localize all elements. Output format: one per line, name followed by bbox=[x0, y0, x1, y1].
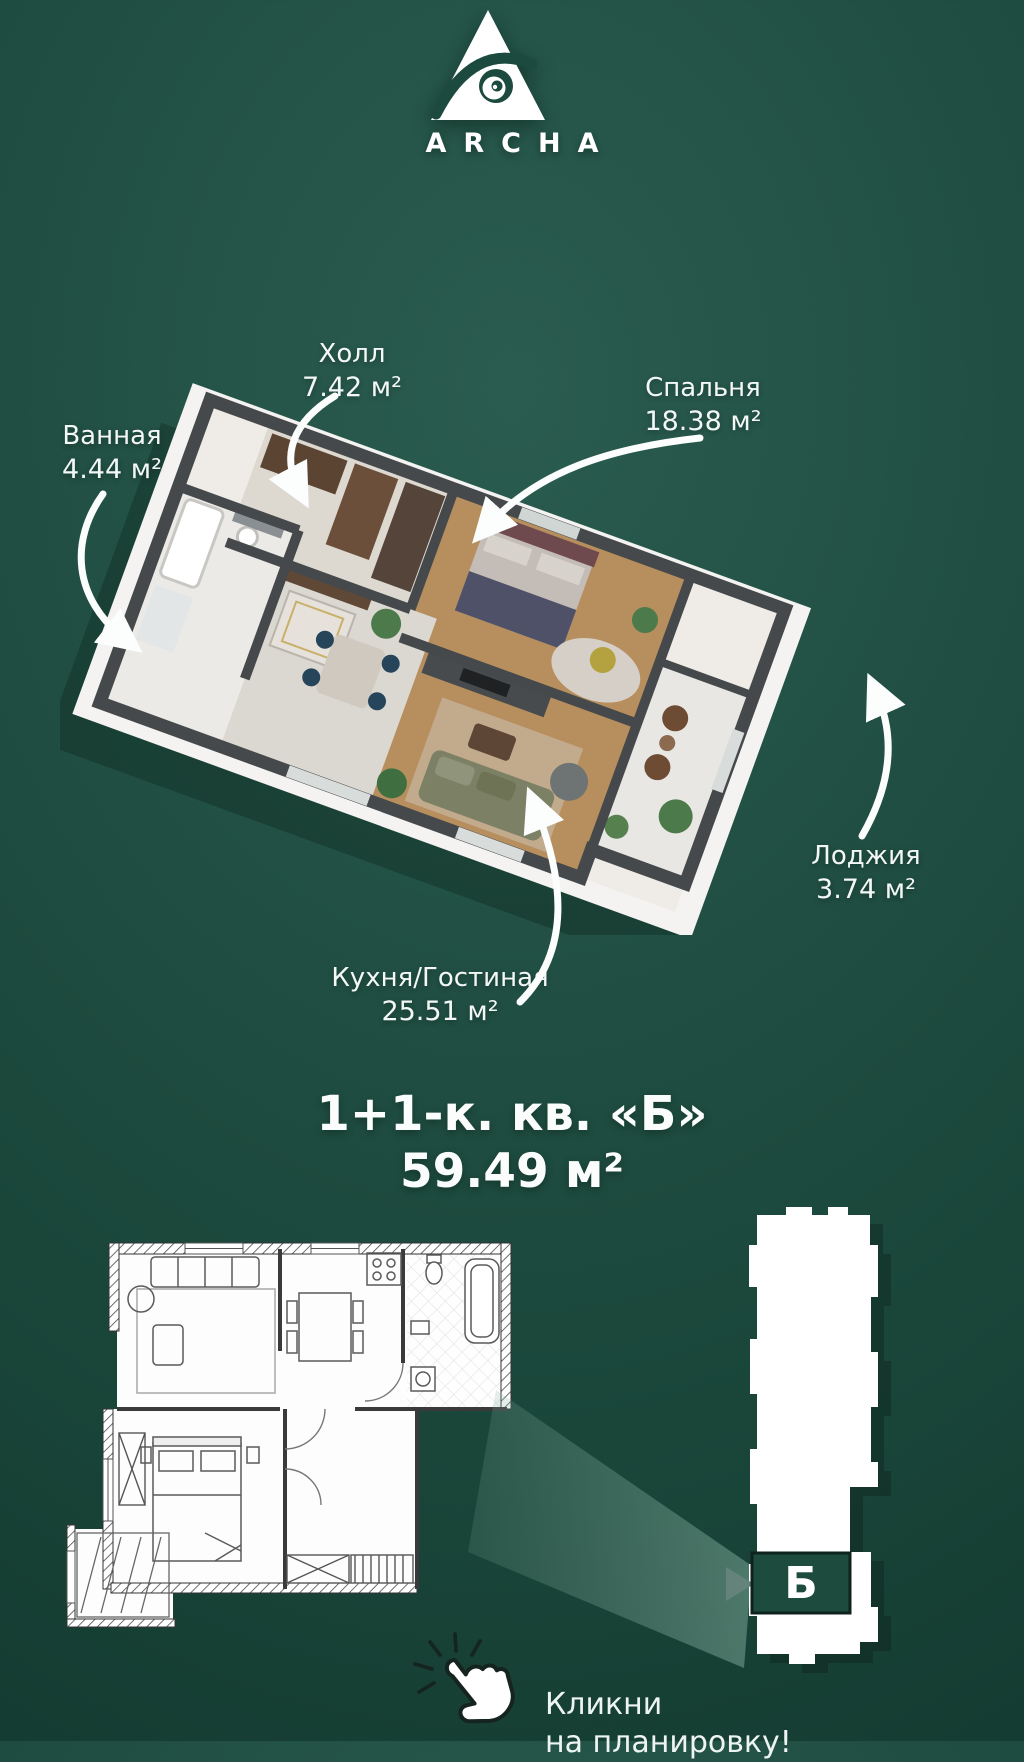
room-name: Лоджия bbox=[766, 840, 966, 873]
room-area: 3.74 м² bbox=[766, 873, 966, 908]
room-name: Ванная bbox=[22, 420, 202, 453]
page: { "brand": { "name": "ARCHA" }, "plan3d"… bbox=[0, 0, 1024, 1741]
room-area: 18.38 м² bbox=[603, 405, 803, 440]
room-name: Кухня/Гостиная bbox=[315, 962, 565, 995]
room-area: 25.51 м² bbox=[315, 995, 565, 1030]
room-label-kitchen-living: Кухня/Гостиная 25.51 м² bbox=[315, 962, 565, 1030]
room-area: 7.42 м² bbox=[252, 371, 452, 406]
room-label-bedroom: Спальня 18.38 м² bbox=[603, 372, 803, 440]
building-silhouette: Б bbox=[690, 1195, 960, 1741]
floorplan-3d bbox=[60, 370, 880, 935]
arrow-bedroom bbox=[486, 438, 700, 528]
brand-name: ARCHA bbox=[0, 128, 1024, 159]
arrow-hall bbox=[291, 396, 335, 490]
page-title: 1+1-к. кв. «Б» 59.49 м² bbox=[0, 1086, 1024, 1200]
cta-line1: Кликни bbox=[545, 1686, 792, 1724]
room-label-hall: Холл 7.42 м² bbox=[252, 338, 452, 406]
arrow-loggia bbox=[862, 692, 888, 836]
room-name: Спальня bbox=[603, 372, 803, 405]
room-label-loggia: Лоджия 3.74 м² bbox=[766, 840, 966, 908]
room-label-bathroom: Ванная 4.44 м² bbox=[22, 420, 202, 488]
arrow-kitchen bbox=[520, 806, 558, 1002]
floorplan-2d[interactable] bbox=[55, 1233, 551, 1645]
title-apartment-type: 1+1-к. кв. «Б» bbox=[0, 1086, 1024, 1143]
title-total-area: 59.49 м² bbox=[0, 1143, 1024, 1200]
unit-label-box[interactable]: Б bbox=[752, 1553, 850, 1613]
archa-logo-icon bbox=[426, 8, 550, 124]
cta-text: Кликни на планировку! bbox=[545, 1686, 792, 1762]
room-area: 4.44 м² bbox=[22, 453, 202, 488]
room-name: Холл bbox=[252, 338, 452, 371]
unit-label: Б bbox=[784, 1558, 818, 1609]
arrow-bathroom bbox=[81, 494, 126, 640]
cta-line2: на планировку! bbox=[545, 1724, 792, 1762]
